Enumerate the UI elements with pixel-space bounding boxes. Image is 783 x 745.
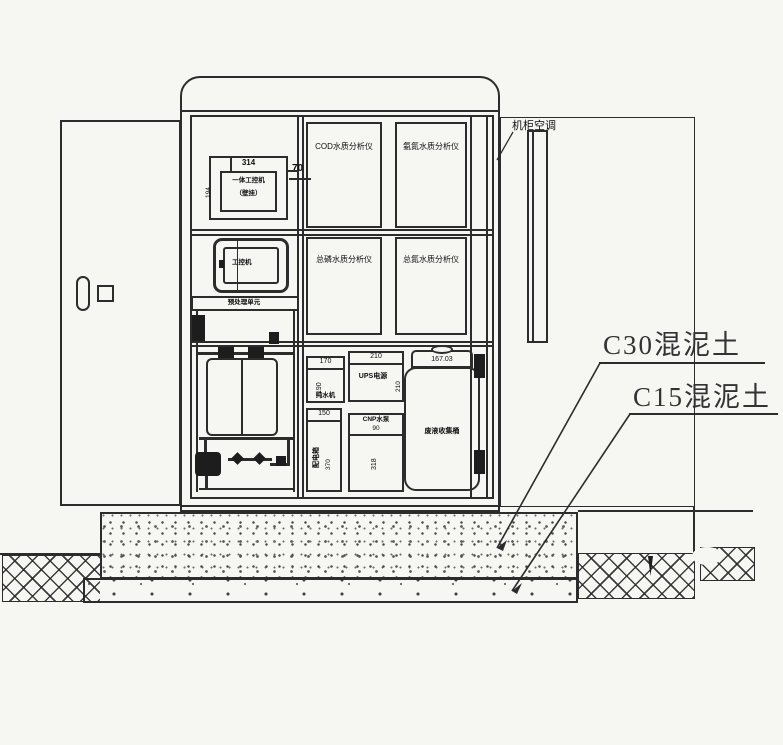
c15-leader-line (512, 414, 630, 591)
leader-lines-overlay (0, 0, 783, 745)
drawing-canvas: COD水质分析仪 氨氮水质分析仪 总磷水质分析仪 总氮水质分析仪 70 314 … (0, 0, 783, 745)
ac-leader-line (497, 132, 513, 160)
c30-leader-line (497, 363, 600, 548)
